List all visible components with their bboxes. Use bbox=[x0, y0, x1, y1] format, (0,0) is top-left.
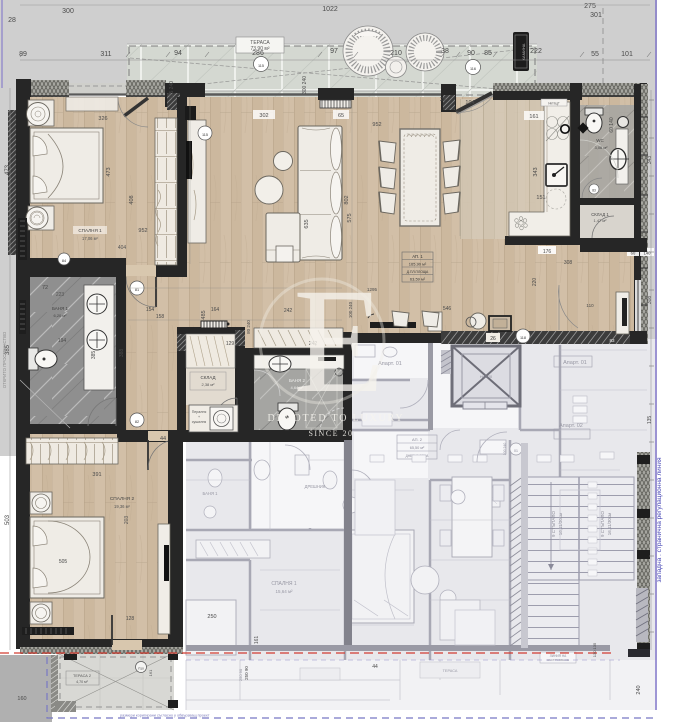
svg-text:286: 286 bbox=[252, 50, 264, 57]
svg-text:176: 176 bbox=[543, 249, 552, 255]
svg-text:44: 44 bbox=[160, 436, 166, 442]
svg-text:275: 275 bbox=[584, 3, 596, 10]
svg-text:65,50 м²: 65,50 м² bbox=[410, 446, 425, 450]
svg-text:161: 161 bbox=[148, 669, 153, 676]
svg-text:ТЕРАСА 2: ТЕРАСА 2 bbox=[73, 674, 91, 678]
svg-text:80 240: 80 240 bbox=[246, 320, 251, 334]
svg-text:КАМИНА: КАМИНА bbox=[521, 43, 526, 60]
svg-text:15,64 м²: 15,64 м² bbox=[275, 589, 293, 594]
svg-text:90: 90 bbox=[467, 50, 475, 57]
svg-text:94: 94 bbox=[174, 50, 182, 57]
svg-text:СПАЛНЯ 1: СПАЛНЯ 1 bbox=[78, 228, 102, 233]
svg-text:100 240: 100 240 bbox=[503, 443, 507, 456]
svg-text:23: 23 bbox=[440, 97, 446, 103]
svg-text:130 135: 130 135 bbox=[592, 642, 597, 657]
svg-text:63,59 м²: 63,59 м² bbox=[410, 277, 426, 282]
svg-text:129: 129 bbox=[226, 341, 235, 347]
svg-text:97: 97 bbox=[330, 48, 338, 55]
svg-text:38: 38 bbox=[441, 48, 449, 55]
svg-text:485: 485 bbox=[201, 310, 207, 319]
svg-text:343: 343 bbox=[533, 167, 539, 176]
svg-text:Д.ПЛ.ПЛОЩА: Д.ПЛ.ПЛОЩА bbox=[407, 270, 429, 274]
svg-text:SINCE 20: SINCE 20 bbox=[308, 429, 353, 438]
svg-text:952: 952 bbox=[138, 228, 147, 234]
svg-text:165,90 м²: 165,90 м² bbox=[409, 262, 427, 267]
svg-text:473: 473 bbox=[5, 164, 11, 175]
svg-text:DEVOTED TO LUXURY: DEVOTED TO LUXURY bbox=[268, 413, 405, 424]
svg-text:Апарт. 02: Апарт. 02 bbox=[559, 423, 583, 429]
svg-text:301: 301 bbox=[590, 12, 602, 19]
svg-text:308: 308 bbox=[564, 260, 573, 266]
svg-text:западна . странична регулацион: западна . странична регулационна линия bbox=[656, 457, 663, 583]
svg-text:404: 404 bbox=[118, 245, 127, 251]
svg-text:WC: WC bbox=[596, 138, 604, 143]
svg-text:385: 385 bbox=[91, 351, 97, 360]
svg-text:250 90: 250 90 bbox=[238, 668, 243, 681]
svg-text:635: 635 bbox=[304, 219, 310, 228]
svg-text:101: 101 bbox=[621, 51, 633, 58]
svg-text:28: 28 bbox=[8, 17, 16, 24]
svg-text:161: 161 bbox=[529, 114, 538, 120]
svg-text:83: 83 bbox=[609, 338, 615, 343]
svg-text:9 СТЪПАЛО: 9 СТЪПАЛО bbox=[551, 511, 556, 537]
svg-text:60 140: 60 140 bbox=[609, 117, 615, 133]
svg-text:19,36 м²: 19,36 м² bbox=[114, 504, 131, 509]
svg-text:84: 84 bbox=[62, 259, 66, 263]
svg-text:СПАЛНЯ 2: СПАЛНЯ 2 bbox=[110, 496, 135, 502]
svg-text:+: + bbox=[198, 415, 200, 419]
svg-text:210: 210 bbox=[390, 50, 402, 57]
svg-text:СКЛАД 1: СКЛАД 1 bbox=[591, 212, 609, 217]
svg-text:П10: П10 bbox=[138, 667, 144, 671]
svg-text:26: 26 bbox=[490, 336, 496, 342]
svg-text:ТЕРАСА: ТЕРАСА bbox=[443, 669, 458, 673]
svg-text:203: 203 bbox=[124, 516, 130, 525]
svg-text:151: 151 bbox=[536, 195, 545, 201]
svg-text:16,11/30см: 16,11/30см bbox=[558, 513, 563, 536]
svg-text:сушилня: сушилня bbox=[192, 420, 207, 424]
svg-text:83: 83 bbox=[592, 189, 596, 193]
svg-text:65: 65 bbox=[338, 113, 344, 119]
svg-text:546: 546 bbox=[443, 306, 452, 312]
svg-text:300: 300 bbox=[62, 8, 74, 15]
svg-text:240: 240 bbox=[636, 685, 642, 694]
svg-text:1022: 1022 bbox=[322, 6, 338, 13]
svg-text:326: 326 bbox=[98, 116, 107, 122]
svg-text:1,47 м²: 1,47 м² bbox=[594, 218, 608, 223]
svg-text:55: 55 bbox=[591, 51, 599, 58]
svg-text:01: 01 bbox=[514, 449, 518, 453]
svg-text:БАНЯ 1: БАНЯ 1 bbox=[52, 306, 69, 311]
svg-text:242: 242 bbox=[284, 308, 293, 314]
svg-text:104: 104 bbox=[465, 100, 474, 106]
svg-text:952: 952 bbox=[372, 122, 381, 128]
svg-text:116: 116 bbox=[470, 67, 476, 71]
svg-text:4,70 м²: 4,70 м² bbox=[76, 680, 88, 684]
svg-text:44: 44 bbox=[372, 664, 378, 670]
svg-text:ОТКРИТО ПРОСТРАНСТВО: ОТКРИТО ПРОСТРАНСТВО bbox=[2, 331, 7, 388]
svg-text:H=2,20: H=2,20 bbox=[480, 375, 492, 379]
svg-text:158: 158 bbox=[156, 314, 165, 320]
svg-text:СКЛАД: СКЛАД bbox=[200, 375, 215, 380]
svg-text:388: 388 bbox=[119, 349, 125, 358]
svg-text:343: 343 bbox=[647, 156, 653, 165]
svg-text:85: 85 bbox=[484, 50, 492, 57]
svg-text:ДРЕШНИК: ДРЕШНИК bbox=[305, 484, 326, 489]
svg-text:БАНЯ 1: БАНЯ 1 bbox=[203, 491, 219, 496]
svg-text:308: 308 bbox=[647, 296, 653, 305]
svg-text:250: 250 bbox=[207, 614, 216, 620]
svg-text:300 240: 300 240 bbox=[302, 76, 308, 94]
svg-text:160: 160 bbox=[17, 696, 26, 702]
svg-text:194: 194 bbox=[58, 338, 67, 344]
svg-text:3,06 м²: 3,06 м² bbox=[595, 145, 609, 150]
svg-text:72: 72 bbox=[42, 285, 48, 291]
svg-text:9 СТЪПАЛО: 9 СТЪПАЛО bbox=[600, 511, 605, 537]
svg-text:154: 154 bbox=[146, 307, 155, 313]
svg-text:311: 311 bbox=[100, 51, 111, 58]
svg-text:16,11/30см: 16,11/30см bbox=[607, 513, 612, 536]
svg-text:6,20 м²: 6,20 м² bbox=[54, 313, 68, 318]
svg-text:223: 223 bbox=[56, 292, 65, 298]
svg-text:АП. 2: АП. 2 bbox=[412, 437, 423, 442]
svg-text:802: 802 bbox=[344, 195, 350, 204]
svg-text:110: 110 bbox=[586, 303, 594, 308]
svg-text:505: 505 bbox=[59, 559, 68, 565]
svg-text:220: 220 bbox=[532, 278, 538, 287]
svg-text:118: 118 bbox=[520, 336, 526, 340]
svg-text:408: 408 bbox=[129, 195, 135, 204]
svg-text:325 240: 325 240 bbox=[169, 81, 175, 99]
svg-text:302: 302 bbox=[259, 113, 268, 119]
svg-text:Апарт. 01: Апарт. 01 bbox=[563, 360, 587, 366]
svg-text:135: 135 bbox=[647, 416, 653, 425]
svg-text:81: 81 bbox=[135, 288, 139, 292]
svg-text:161: 161 bbox=[254, 636, 260, 645]
svg-text:НптцГ: НптцГ bbox=[548, 101, 560, 106]
svg-text:164: 164 bbox=[211, 307, 220, 313]
svg-text:Пералня: Пералня bbox=[192, 410, 207, 414]
svg-text:82: 82 bbox=[135, 420, 139, 424]
svg-text:222: 222 bbox=[530, 48, 542, 55]
svg-text:115: 115 bbox=[258, 64, 264, 68]
svg-text:473: 473 bbox=[106, 167, 112, 176]
svg-text:размери коригирани съгласно у: размери коригирани съгласно у обвързващ … bbox=[120, 714, 210, 718]
svg-text:17,06 м²: 17,06 м² bbox=[82, 236, 99, 241]
svg-text:391: 391 bbox=[92, 472, 101, 478]
svg-text:2,38 м²: 2,38 м² bbox=[202, 382, 216, 387]
svg-text:503: 503 bbox=[5, 514, 11, 525]
svg-text:АП. 1: АП. 1 bbox=[412, 254, 423, 259]
svg-text:СПАЛНЯ 1: СПАЛНЯ 1 bbox=[271, 581, 297, 587]
svg-text:115: 115 bbox=[202, 133, 208, 137]
svg-text:128: 128 bbox=[126, 616, 135, 622]
svg-text:250 90: 250 90 bbox=[244, 666, 249, 680]
